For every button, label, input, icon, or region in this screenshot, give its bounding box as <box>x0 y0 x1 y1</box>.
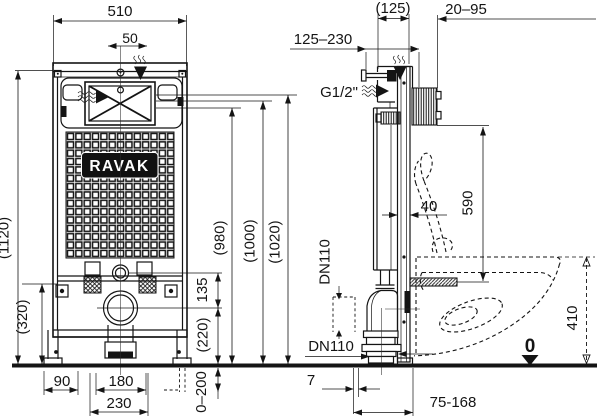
dim-90: 90 <box>44 371 78 395</box>
dim-1020-label: (1020) <box>267 220 284 263</box>
dim-1000-label: (1000) <box>242 219 259 262</box>
dim-230-label: 230 <box>106 395 131 412</box>
ravak-logo-text: RAVAK <box>89 158 149 175</box>
technical-drawing-page: RAVAK <box>0 0 600 419</box>
dim-180: 180 <box>96 373 146 395</box>
frame-legs <box>44 330 191 365</box>
dim-7: 7 <box>307 372 380 392</box>
dim-410-label: 410 <box>564 305 581 330</box>
dim-0-200: 0–200 <box>193 368 218 413</box>
below-floor-lines <box>354 368 414 416</box>
dim-125-230-label: 125–230 <box>294 31 352 48</box>
fixing-rod <box>410 278 457 286</box>
lower-frame-section <box>53 262 187 358</box>
dim-135: 135 <box>194 273 218 308</box>
side-view <box>333 55 560 416</box>
dim-980-label: (980) <box>212 220 229 255</box>
dim-510-label: 510 <box>107 3 132 20</box>
dn110-lower-label: DN110 <box>308 338 354 355</box>
dim-1000: (1000) <box>242 101 264 364</box>
dim-20-95-label: 20–95 <box>445 1 487 18</box>
dim-590: 590 <box>437 126 489 283</box>
dim-75-168-label: 75-168 <box>430 394 477 411</box>
flush-water-flow-icon <box>134 55 147 80</box>
side-rail <box>398 67 413 367</box>
dim-90-label: 90 <box>54 373 71 390</box>
water-inlet-flow-icon <box>362 85 389 98</box>
dim-0-200-label: 0–200 <box>193 371 210 413</box>
dim-590-label: 590 <box>460 190 477 215</box>
air-flow-icon <box>78 91 109 104</box>
dim-510: 510 <box>54 3 187 66</box>
wall-bracket-and-bolt <box>362 67 413 109</box>
label-g12: G1/2" <box>320 84 358 101</box>
dim-980: (980) <box>212 108 233 364</box>
access-panel <box>61 78 184 128</box>
insulation-grid-panel <box>66 132 174 258</box>
dim-40: 40 <box>382 198 447 218</box>
label-dn110-upper: DN110 <box>317 239 334 285</box>
flow-arrows-side <box>362 55 407 98</box>
dim-1120-label: (1120) <box>0 217 13 259</box>
dim-125: (125) <box>375 0 410 69</box>
dim-220: (220) <box>195 308 219 364</box>
dim-50: 50 <box>108 30 147 46</box>
dim-220-label: (220) <box>195 317 212 352</box>
water-supply-wall-box <box>412 88 441 125</box>
g12-label: G1/2" <box>320 84 358 101</box>
dim-320-label: (320) <box>14 299 31 334</box>
front-below-floor-dashed <box>164 368 185 392</box>
floor-line <box>12 364 597 368</box>
dim-20-95: 20–95 <box>438 1 597 88</box>
cistern-side <box>374 108 401 270</box>
dim-135-label: 135 <box>194 277 211 302</box>
dim-7-label: 7 <box>307 372 315 389</box>
installation-frame-drawing: RAVAK <box>0 0 600 419</box>
dimensions-side: (125) 20–95 125–230 G1/2" 40 <box>290 0 596 413</box>
dn110-upper-label: DN110 <box>317 239 334 285</box>
dim-410: 410 <box>558 257 595 364</box>
alternate-drain-dashed <box>333 286 355 339</box>
label-dn110-lower: DN110 <box>305 338 370 360</box>
dim-50-label: 50 <box>122 30 138 46</box>
dim-1020: (1020) <box>267 95 289 364</box>
dim-125-label: (125) <box>375 0 410 17</box>
front-view: RAVAK <box>15 46 297 375</box>
floor-zero-label: 0 <box>525 336 536 357</box>
floor-reference: 0 <box>522 336 539 366</box>
dim-40-label: 40 <box>421 198 438 215</box>
ravak-logo: RAVAK <box>82 153 159 179</box>
dim-180-label: 180 <box>108 373 133 390</box>
toilet-bowl-outline <box>414 153 560 356</box>
dim-75-168: 75-168 <box>354 394 477 413</box>
